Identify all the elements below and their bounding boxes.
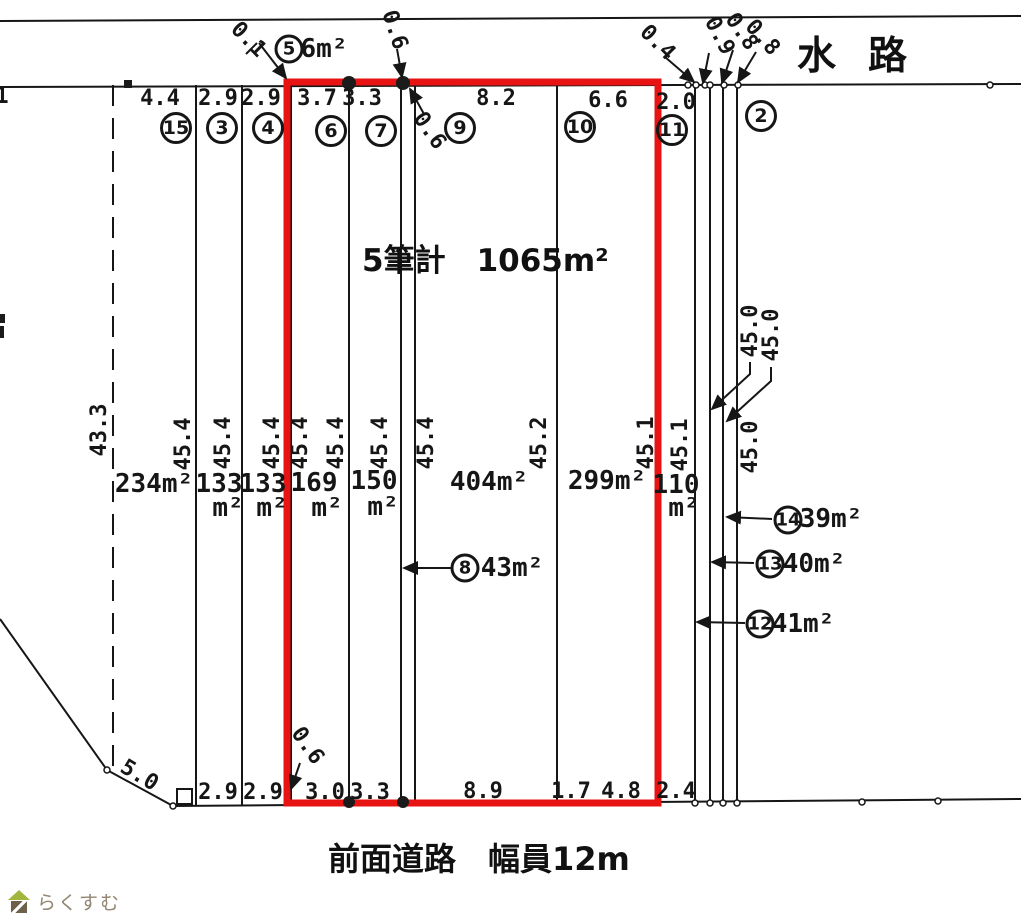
area-label: 39m²	[800, 506, 863, 532]
measurement-label: 2.0	[656, 92, 696, 114]
parcel-number-badge: 6	[315, 115, 347, 147]
measurement-label: 4.4	[140, 88, 180, 110]
measurement-label: 8.2	[476, 88, 516, 110]
vertical-measurement-label: 45.4	[416, 417, 438, 470]
vertical-measurement-label: 45.2	[529, 417, 551, 470]
parcel-number-badge: 9	[444, 112, 476, 144]
area-label: 6m²	[301, 36, 348, 62]
diagonal-measurement-label: 0.1	[226, 18, 270, 62]
area-label: 404m²	[450, 469, 528, 495]
vertical-measurement-label: 45.4	[262, 417, 284, 470]
measurement-labels-layer: 14.42.92.93.73.38.26.62.02.92.93.03.38.9…	[0, 0, 1021, 916]
vertical-measurement-label: 45.4	[290, 417, 312, 470]
parcel-number-badge: 10	[564, 111, 596, 143]
measurement-label: 1.7	[551, 781, 591, 803]
parcel-number-badge: 2	[745, 100, 777, 132]
vertical-measurement-label: 45.4	[370, 417, 392, 470]
waterway-label: 水路	[797, 37, 939, 76]
house-body-icon	[11, 901, 27, 913]
watermark: らくすむ	[8, 888, 121, 915]
parcel-number-badge: 11	[656, 114, 688, 146]
vertical-measurement-label: 45.0	[761, 309, 783, 362]
area-label: 41m²	[772, 611, 835, 637]
measurement-label: 2.4	[656, 781, 696, 803]
vertical-measurement-label: 45.4	[326, 417, 348, 470]
parcel-number-badge: 12	[746, 610, 775, 639]
watermark-text: らくすむ	[37, 888, 121, 915]
vertical-measurement-label: 45.0	[740, 421, 762, 474]
area-label: m²	[311, 495, 342, 521]
parcel-number-badge: 5	[275, 35, 304, 64]
area-label: 234m²	[115, 471, 193, 497]
measurement-label: 4.8	[601, 781, 641, 803]
vertical-measurement-label: 45.1	[636, 417, 658, 470]
land-survey-diagram: 14.42.92.93.73.38.26.62.02.92.93.03.38.9…	[0, 0, 1021, 916]
area-label: 299m²	[568, 468, 646, 494]
road-label: 前面道路 幅員12m	[328, 843, 630, 875]
parcel-number-badge: 13	[756, 550, 785, 579]
parcel-number-badge: 15	[160, 112, 192, 144]
vertical-measurement-label: 45.4	[173, 418, 195, 471]
measurement-label: 2.9	[198, 88, 238, 110]
area-label: m²	[668, 495, 699, 521]
measurement-label: 1	[0, 86, 9, 108]
diagonal-measurement-label: 0.4	[635, 21, 679, 65]
diagonal-measurement-label: 5.0	[116, 756, 161, 795]
measurement-label: 3.3	[342, 88, 382, 110]
diagonal-measurement-label: 0.6	[287, 723, 328, 768]
measurement-label: 2.9	[243, 782, 283, 804]
area-label: m²	[367, 494, 398, 520]
measurement-label: 6.6	[588, 90, 628, 112]
measurement-label: 3.7	[297, 88, 337, 110]
total-area-label: 5筆計 1065m²	[362, 246, 609, 277]
house-roof-icon	[8, 890, 30, 900]
parcel-number-badge: 4	[252, 112, 284, 144]
measurement-label: 2.9	[241, 88, 281, 110]
area-label: m²	[256, 495, 287, 521]
vertical-measurement-label: 43.3	[89, 404, 111, 457]
area-label: 40m²	[783, 551, 846, 577]
vertical-measurement-label: 45.1	[670, 419, 692, 472]
parcel-number-badge: 7	[365, 115, 397, 147]
diagonal-measurement-label: 0.6	[409, 108, 450, 153]
house-icon	[8, 890, 30, 914]
measurement-label: 3.3	[350, 782, 390, 804]
area-label: 150	[351, 468, 398, 494]
vertical-measurement-label: 45.4	[213, 417, 235, 470]
measurement-label: 2.9	[198, 782, 238, 804]
parcel-number-badge: 8	[451, 554, 480, 583]
measurement-label: 8.9	[463, 781, 503, 803]
area-label: 43m²	[481, 555, 544, 581]
parcel-number-badge: 3	[206, 112, 238, 144]
measurement-label: 3.0	[305, 782, 345, 804]
diagonal-measurement-label: 0.6	[377, 8, 410, 53]
parcel-number-badge: 14	[774, 506, 803, 535]
